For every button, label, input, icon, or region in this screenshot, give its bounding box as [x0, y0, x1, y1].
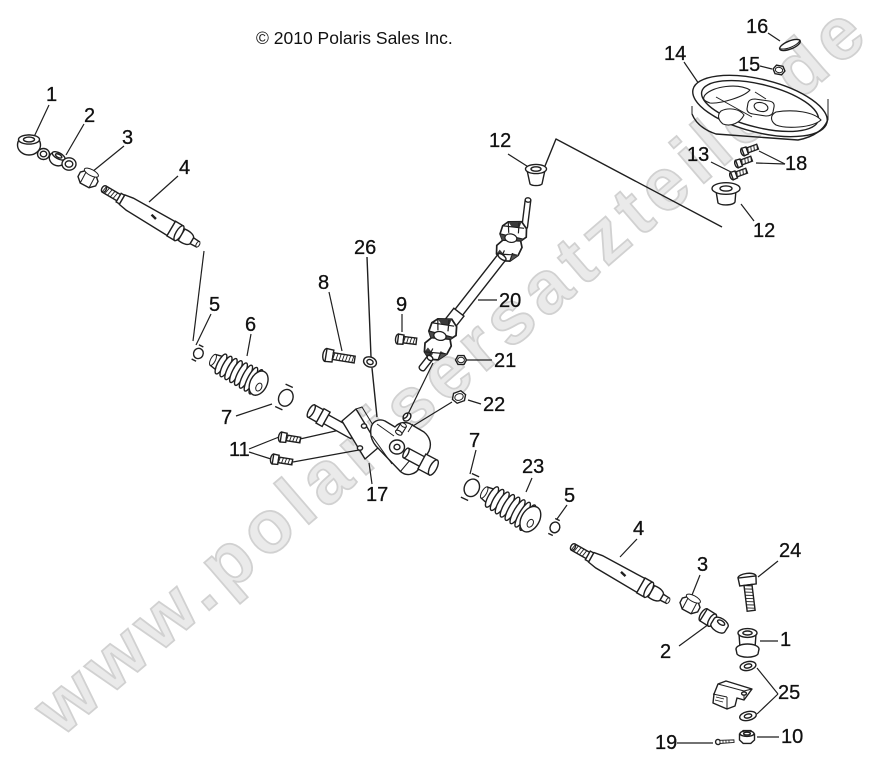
- svg-text:2: 2: [660, 641, 671, 663]
- svg-text:2: 2: [84, 105, 95, 127]
- svg-text:6: 6: [245, 314, 256, 336]
- svg-text:17: 17: [366, 484, 388, 506]
- svg-text:3: 3: [697, 554, 708, 576]
- svg-text:12: 12: [489, 130, 511, 152]
- svg-text:18: 18: [785, 153, 807, 175]
- svg-text:21: 21: [494, 350, 516, 372]
- svg-text:8: 8: [318, 272, 329, 294]
- svg-text:1: 1: [780, 629, 791, 651]
- svg-text:16: 16: [746, 16, 768, 38]
- svg-text:9: 9: [396, 294, 407, 316]
- svg-text:25: 25: [778, 682, 800, 704]
- svg-text:5: 5: [564, 485, 575, 507]
- svg-text:20: 20: [499, 290, 521, 312]
- svg-text:10: 10: [781, 726, 803, 748]
- svg-text:11: 11: [229, 439, 250, 461]
- svg-text:14: 14: [664, 43, 686, 65]
- svg-text:13: 13: [687, 144, 709, 166]
- svg-text:24: 24: [779, 540, 801, 562]
- svg-text:4: 4: [179, 157, 190, 179]
- svg-text:22: 22: [483, 394, 505, 416]
- svg-text:7: 7: [221, 407, 232, 429]
- svg-text:26: 26: [354, 237, 376, 259]
- svg-text:15: 15: [738, 54, 760, 76]
- svg-text:4: 4: [633, 518, 644, 540]
- svg-text:© 2010 Polaris Sales Inc.: © 2010 Polaris Sales Inc.: [256, 28, 453, 48]
- svg-text:1: 1: [46, 84, 57, 106]
- svg-text:3: 3: [122, 127, 133, 149]
- svg-text:19: 19: [655, 732, 677, 754]
- svg-text:23: 23: [522, 456, 544, 478]
- svg-text:12: 12: [753, 220, 775, 242]
- svg-text:7: 7: [469, 430, 480, 452]
- svg-text:5: 5: [209, 294, 220, 316]
